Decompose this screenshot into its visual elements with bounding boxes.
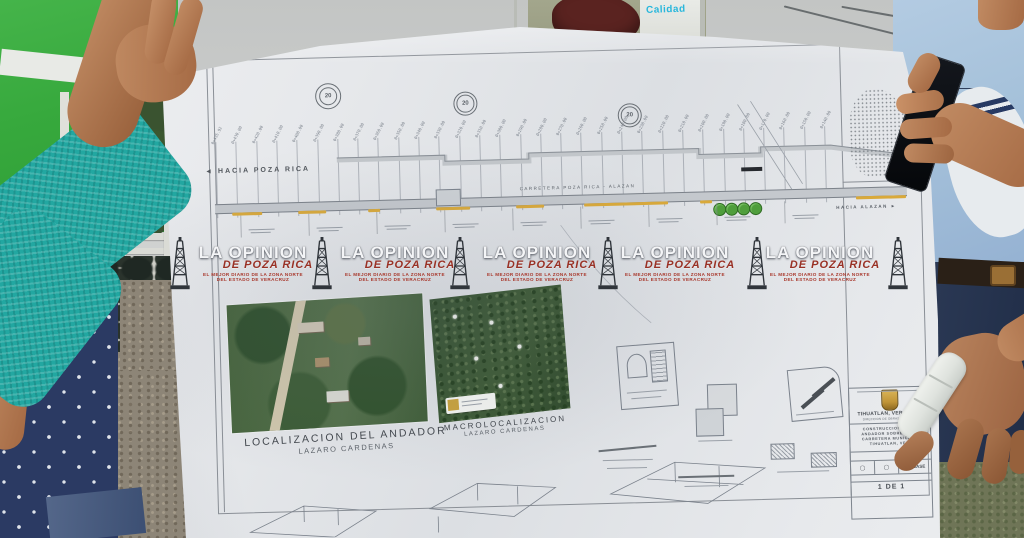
aerial-road [266,293,308,433]
card-text-line [462,398,488,402]
satellite-image-macro [429,285,570,424]
signature-cell: ◯ [851,461,875,475]
right-hand-finger [904,143,955,164]
map-marker [489,320,493,324]
map-info-card [445,393,496,415]
left-person-jeans [46,487,146,538]
utility-pole [514,0,517,30]
calidad-sign: Calidad [646,3,704,16]
map-marker [453,314,457,318]
sheet-number: 1 DE 1 [851,480,931,492]
satellite-image-localizacion [227,293,428,433]
right-person-neck [978,0,1024,30]
municipal-shield [881,389,899,410]
right-hand-finger [899,116,952,140]
map-marker [498,384,502,388]
bandaged-hand-finger [1008,429,1024,474]
pavement-box [436,189,461,207]
map-marker [474,356,478,360]
detail-drawing [678,471,739,499]
belt-buckle [990,265,1016,286]
aerial-building [358,337,370,346]
aerial-building [297,322,323,334]
card-thumbnail [447,399,459,411]
detail-drawing [695,384,739,447]
detail-drawing [616,342,679,410]
detail-drawing [598,441,661,483]
existing-structure-bar [741,167,762,172]
map-marker [517,344,521,348]
photo-scene: Calidad oo 0+435.920+430.000+42 [0,0,1024,538]
aerial-building [326,390,348,402]
card-text-line [462,403,482,406]
detail-drawing [787,365,844,422]
aerial-building [315,357,329,367]
detail-drawing [770,438,841,478]
road-marking-dash [700,200,712,203]
road-marking-dash [368,209,380,212]
